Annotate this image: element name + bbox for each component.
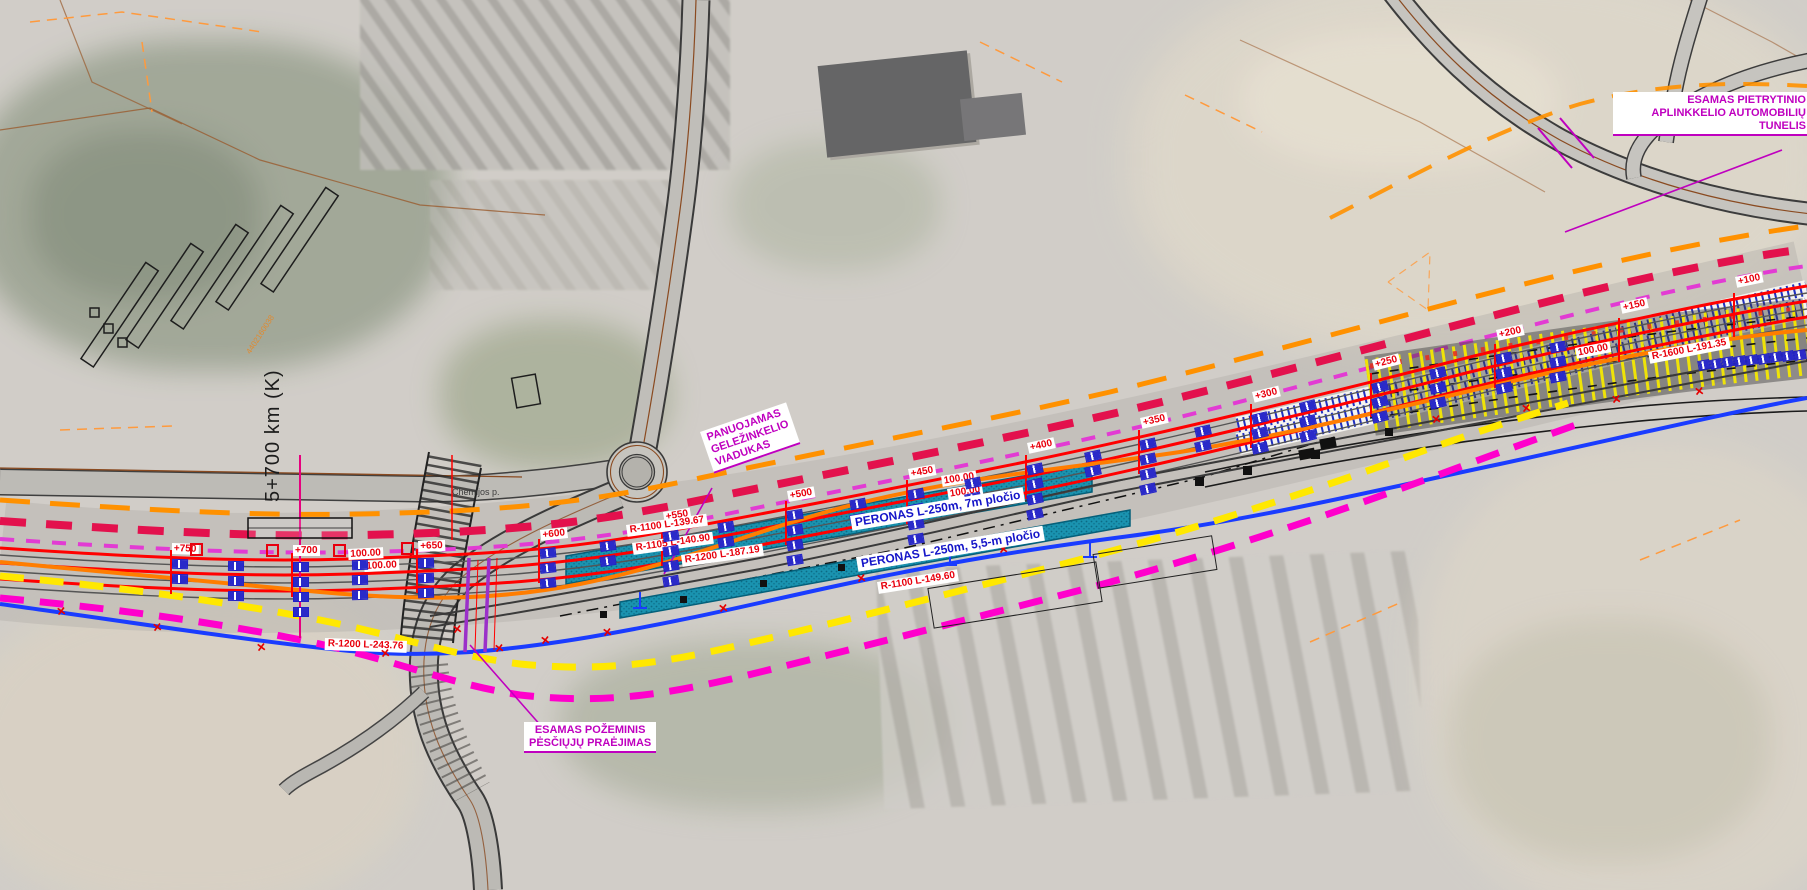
boundary-square xyxy=(680,596,687,603)
rail-marker-box xyxy=(1139,467,1157,480)
tunnel-annotation: ESAMAS PIETRYTINIO APLINKKELIO AUTOMOBIL… xyxy=(1613,92,1807,136)
rail-marker-box xyxy=(786,539,803,552)
street-name-label: Chemijos p. xyxy=(452,487,500,497)
rail-marker-box xyxy=(1495,351,1513,364)
underpass-annotation-line1: ESAMAS POŽEMINIS xyxy=(529,724,651,737)
chainage-label: +600 xyxy=(540,527,568,541)
rail-marker-box xyxy=(1251,427,1269,441)
signal-square xyxy=(266,544,279,557)
rail-marker-box xyxy=(1084,450,1102,463)
rail-marker-box-small xyxy=(1793,349,1807,361)
chainage-tick xyxy=(1025,455,1027,499)
track-removal-x: × xyxy=(718,602,728,615)
track-removal-x: × xyxy=(1611,393,1621,406)
track-removal-x: × xyxy=(256,641,266,654)
track-removal-x: × xyxy=(540,634,550,647)
rail-marker-box xyxy=(1429,396,1447,409)
radius-label: R-1100 L-149.60 xyxy=(877,569,959,594)
rail-marker-box xyxy=(1495,381,1513,394)
rail-marker-box xyxy=(228,590,244,600)
track-removal-x: × xyxy=(494,642,504,655)
rail-marker-box xyxy=(172,559,188,569)
tunnel-annotation-line2: APLINKKELIO AUTOMOBILIŲ xyxy=(1618,107,1806,120)
rail-marker-box xyxy=(1549,356,1567,369)
signal-square xyxy=(333,544,346,557)
rail-marker-box xyxy=(352,590,368,601)
boundary-square xyxy=(600,611,607,618)
rail-marker-box xyxy=(1026,477,1044,490)
rail-marker-box xyxy=(1139,452,1157,465)
track-removal-x: × xyxy=(1521,402,1531,415)
chainage-label: +200 xyxy=(1496,324,1524,340)
rail-marker-box xyxy=(1429,381,1447,394)
signal-square xyxy=(401,542,414,555)
tunnel-annotation-line1: ESAMAS PIETRYTINIO xyxy=(1618,94,1806,107)
underpass-annotation-line2: PĖSČIŲJŲ PRAĖJIMAS xyxy=(529,737,651,750)
track-removal-x: × xyxy=(602,626,612,639)
chainage-label: +650 xyxy=(418,540,445,552)
radius-label: R-1200 L-243.76 xyxy=(325,638,407,653)
chainage-tick xyxy=(1494,344,1496,388)
rail-marker-box xyxy=(1139,482,1157,495)
rail-marker-box xyxy=(228,560,244,570)
chainage-tick xyxy=(1250,404,1252,448)
chainage-tick xyxy=(785,501,787,545)
track-removal-x: × xyxy=(56,605,66,618)
rail-marker-box xyxy=(1371,380,1389,394)
rail-marker-box xyxy=(1026,507,1044,520)
rail-marker-box xyxy=(1299,429,1317,443)
signal-square xyxy=(190,543,203,556)
rail-marker-box xyxy=(418,558,434,569)
rail-marker-box xyxy=(1371,395,1389,409)
rail-marker-box xyxy=(1549,341,1567,354)
rail-marker-box xyxy=(293,577,309,587)
chainage-tick xyxy=(1138,430,1140,474)
boundary-square xyxy=(1385,428,1393,436)
chainage-tick xyxy=(1733,293,1735,337)
rail-marker-box xyxy=(418,588,434,599)
chainage-tick xyxy=(291,553,293,597)
rail-marker-box xyxy=(662,560,679,572)
rail-marker-box xyxy=(1084,465,1102,478)
rail-marker-box xyxy=(907,532,925,545)
chainage-tick xyxy=(1618,318,1620,362)
rail-marker-box xyxy=(662,545,679,557)
rail-marker-box xyxy=(662,575,679,587)
chainage-label: +700 xyxy=(293,545,320,556)
rail-marker-box xyxy=(1495,366,1513,379)
chainage-label: +100 xyxy=(1735,272,1763,288)
rail-marker-box xyxy=(786,554,803,567)
chainage-label: +350 xyxy=(1140,412,1168,429)
rail-marker-box xyxy=(786,509,803,522)
rail-marker-box xyxy=(172,574,188,584)
rail-marker-box xyxy=(1026,462,1044,475)
track-removal-x: × xyxy=(856,572,866,585)
boundary-square xyxy=(1243,466,1252,475)
measurement-label: 100.00 xyxy=(1575,341,1611,358)
chainage-label: +150 xyxy=(1620,298,1648,314)
rail-marker-box xyxy=(1194,425,1212,438)
rail-marker-box xyxy=(907,487,925,500)
measurement-label: 100.00 xyxy=(364,559,399,572)
rail-marker-box xyxy=(293,592,309,602)
rail-marker-box xyxy=(293,562,309,572)
chainage-tick xyxy=(1370,373,1372,417)
rail-marker-box xyxy=(293,607,309,617)
boundary-square xyxy=(1195,477,1204,486)
rail-marker-box xyxy=(1299,414,1317,428)
tunnel-annotation-line3: TUNELIS xyxy=(1618,120,1806,133)
rail-marker-box xyxy=(1251,442,1269,456)
rail-marker-box xyxy=(1194,440,1212,453)
plan-canvas: +750+700+650+600+550+500+450+400+350+300… xyxy=(0,0,1807,890)
rail-marker-box xyxy=(352,575,368,586)
rail-marker-box xyxy=(1251,412,1269,426)
rail-marker-box xyxy=(540,547,557,559)
track-removal-x: × xyxy=(1431,413,1441,426)
boundary-square xyxy=(838,564,845,571)
rail-marker-box xyxy=(1549,371,1567,384)
chainage-tick xyxy=(416,549,418,593)
chainage-label: +250 xyxy=(1372,353,1400,370)
boundary-square xyxy=(760,580,767,587)
underpass-annotation: ESAMAS POŽEMINIS PĖSČIŲJŲ PRAĖJIMAS xyxy=(524,722,656,753)
chainage-label: +400 xyxy=(1027,438,1055,454)
track-removal-x: × xyxy=(452,623,462,636)
rail-marker-box xyxy=(849,498,867,511)
rail-marker-box xyxy=(599,539,616,551)
rail-marker-box xyxy=(1371,410,1389,424)
boundary-square xyxy=(1311,450,1320,459)
chainage-label: +500 xyxy=(787,486,815,501)
chainage-tick xyxy=(170,550,172,594)
rail-marker-box xyxy=(228,575,244,585)
rail-marker-box xyxy=(717,521,734,534)
rail-marker-box xyxy=(1429,366,1447,379)
measurement-label: 100.00 xyxy=(348,547,383,560)
chainage-label: +300 xyxy=(1252,385,1280,402)
rail-marker-box xyxy=(540,562,557,574)
rail-marker-box xyxy=(599,554,616,566)
km-post-label: 5+700 km (K) xyxy=(262,369,285,502)
rail-marker-box xyxy=(540,577,557,589)
track-removal-x: × xyxy=(1694,385,1704,398)
rail-marker-box xyxy=(1139,437,1157,450)
rail-marker-box xyxy=(418,573,434,584)
rail-marker-box xyxy=(1026,492,1044,505)
rail-marker-box xyxy=(717,536,734,549)
track-removal-x: × xyxy=(152,621,162,634)
rail-marker-box xyxy=(352,560,368,571)
rail-marker-box xyxy=(1299,399,1317,413)
track-removal-x: × xyxy=(380,647,390,660)
chainage-label: +450 xyxy=(908,464,936,480)
chainage-tick xyxy=(538,539,540,583)
rail-marker-box xyxy=(786,524,803,537)
